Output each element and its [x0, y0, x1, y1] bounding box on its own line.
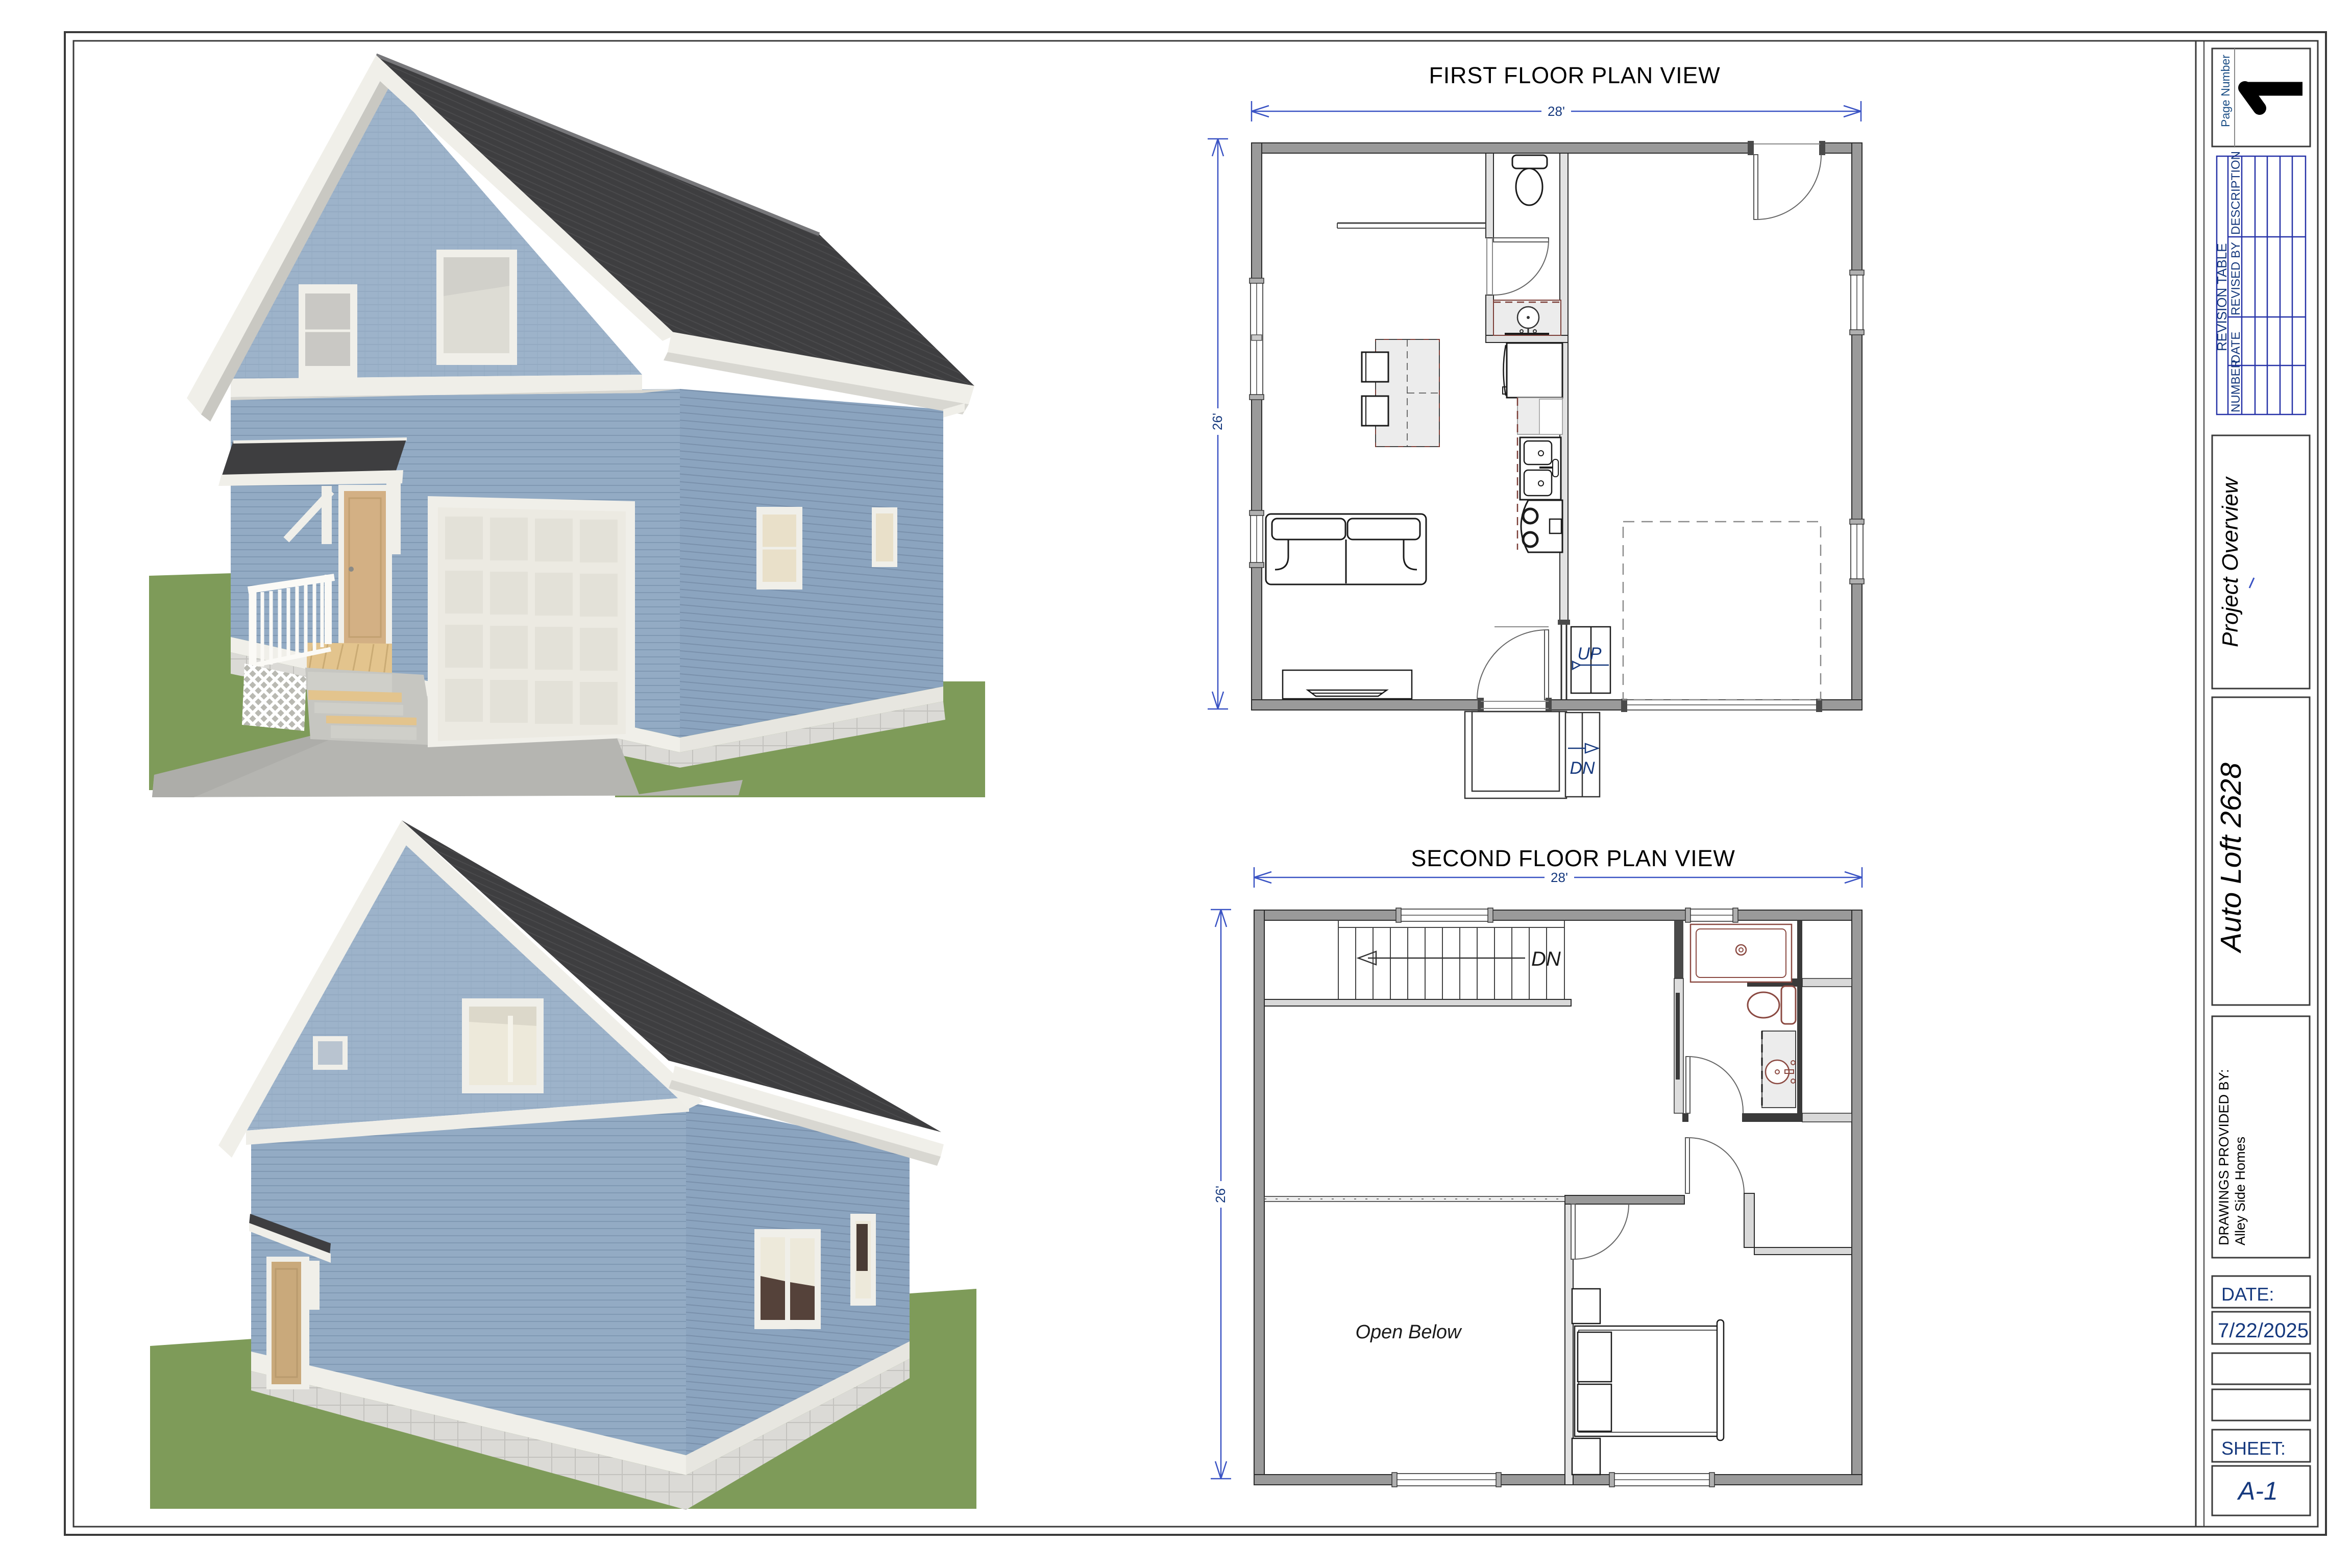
svg-text:Page Number: Page Number [2219, 55, 2232, 127]
svg-text:26': 26' [1210, 413, 1225, 430]
svg-text:Open Below: Open Below [1355, 1321, 1462, 1343]
svg-text:NUMBER: NUMBER [2229, 359, 2243, 412]
svg-text:DATE:: DATE: [2221, 1284, 2274, 1305]
svg-text:DESCRIPTION: DESCRIPTION [2229, 151, 2243, 235]
svg-text:REVISED BY: REVISED BY [2229, 242, 2243, 315]
svg-text:UP: UP [1577, 644, 1602, 664]
svg-text:FIRST FLOOR PLAN VIEW: FIRST FLOOR PLAN VIEW [1429, 62, 1720, 88]
svg-text:28': 28' [1551, 870, 1568, 885]
svg-text:Alley Side Homes: Alley Side Homes [2233, 1137, 2248, 1245]
svg-text:A-1: A-1 [2237, 1477, 2278, 1505]
svg-text:26': 26' [1213, 1186, 1228, 1203]
svg-text:DATE: DATE [2229, 332, 2243, 363]
svg-text:28': 28' [1548, 104, 1565, 119]
svg-text:DRAWINGS PROVIDED BY:: DRAWINGS PROVIDED BY: [2216, 1069, 2232, 1245]
svg-text:DN: DN [1570, 758, 1595, 778]
svg-text:REVISION TABLE: REVISION TABLE [2214, 243, 2229, 351]
svg-text:SHEET:: SHEET: [2221, 1438, 2286, 1459]
svg-text:DN: DN [1531, 948, 1561, 970]
svg-text:Auto Loft 2628: Auto Loft 2628 [2215, 763, 2247, 953]
svg-text:Project Overview: Project Overview [2218, 476, 2243, 647]
svg-text:7/22/2025: 7/22/2025 [2218, 1319, 2309, 1342]
svg-text:SECOND FLOOR PLAN VIEW: SECOND FLOOR PLAN VIEW [1411, 845, 1735, 871]
